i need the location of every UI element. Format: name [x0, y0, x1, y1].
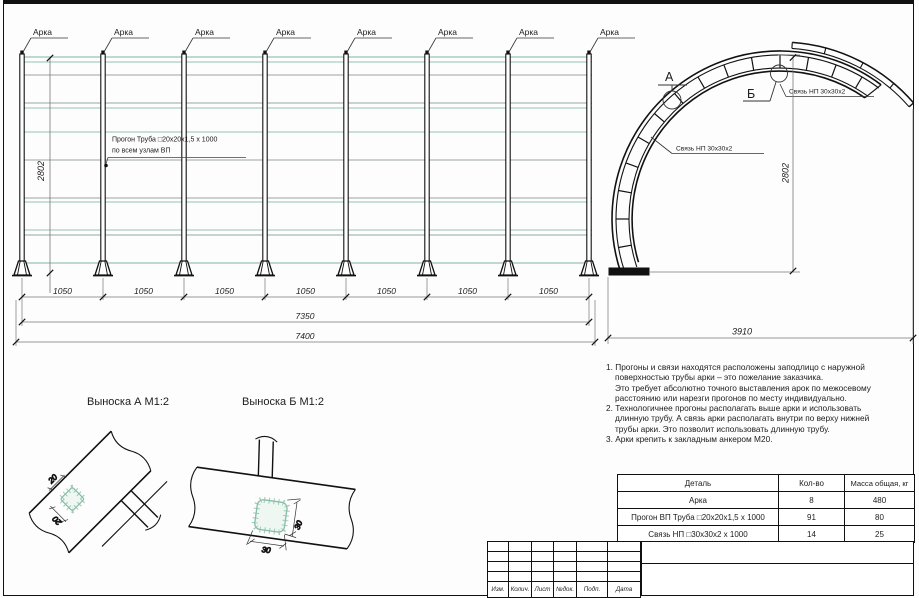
callout-a-label: А: [665, 70, 674, 84]
dim-1050: 1050: [296, 286, 315, 296]
table-header-mass: Масса общая, кг: [845, 475, 914, 492]
title-block-label-kolich: Колич.: [509, 582, 532, 597]
detail-b-title: Выноска Б М1:2: [242, 396, 324, 408]
note-line: трубы арки. Это позволит использовать дл…: [606, 424, 919, 434]
table-cell-qty: 14: [779, 526, 845, 542]
title-block-label-izm: Изм.: [488, 582, 509, 597]
arch-label: Арка: [438, 27, 457, 37]
note-line: длинную трубу. А связь арки располагать …: [606, 413, 919, 423]
table-cell-qty: 8: [779, 492, 845, 509]
elevation-dim-labels: 1050 1050 1050 1050 1050 1050 1050 7350 …: [53, 286, 558, 341]
table-cell-qty: 91: [779, 509, 845, 526]
table-cell-mass: 480: [845, 492, 914, 509]
dim-1050: 1050: [458, 286, 477, 296]
dim-3910: 3910: [732, 327, 752, 337]
title-block-name-area: [641, 541, 914, 596]
section-dims: 2802 3910: [605, 54, 916, 344]
detail-a-dim2: 20: [50, 514, 64, 528]
dim-1050: 1050: [215, 286, 234, 296]
dim-1050: 1050: [377, 286, 396, 296]
note-line: 2. Технологичнее прогоны располагать выш…: [606, 403, 919, 413]
detail-b-view: Выноска Б М1:2 30: [182, 396, 365, 566]
tie-label-top-text: Связь НП 30х30х2: [789, 89, 846, 96]
ladder-rungs: [616, 55, 862, 248]
arch-label: Арка: [600, 27, 619, 37]
callout-b-label: Б: [747, 87, 755, 101]
dim-1050: 1050: [53, 286, 72, 296]
tie-label-side-text: Связь НП 30х30х2: [676, 146, 733, 153]
table-cell-detail: Арка: [618, 492, 779, 509]
arch-label: Арка: [195, 27, 214, 37]
arch-label: Арка: [114, 27, 133, 37]
arch-base-plate: [609, 268, 649, 275]
title-block-label-podp: Подп.: [577, 582, 608, 597]
arch-label: Арка: [276, 27, 295, 37]
table-header-detail: Деталь: [618, 475, 779, 492]
dim-2802-section: 2802: [781, 163, 791, 184]
note-line: 3. Арки крепить к закладным анкером М20.: [606, 434, 919, 444]
table-cell-mass: 25: [845, 526, 914, 542]
detail-a-title: Выноска А М1:2: [87, 396, 169, 408]
arch-posts: [12, 38, 635, 276]
elevation-height-dim: 2802: [36, 55, 53, 293]
note-line: 1. Прогоны и связи находятся расположены…: [606, 362, 919, 372]
dim-2802: 2802: [36, 161, 46, 182]
title-block-label-list: Лист: [532, 582, 554, 597]
arch-label: Арка: [33, 27, 52, 37]
note-line: поверхностью трубы арки – это пожелание …: [606, 372, 919, 382]
tie-label-side: Связь НП 30х30х2: [651, 137, 764, 154]
elevation-view: Арка Арка Арка Арка Арка Арка Арка Арка …: [12, 27, 635, 346]
purlin-note-line1: Прогон Труба □20x20x1,5 х 1000: [112, 136, 217, 144]
dim-7400: 7400: [296, 331, 315, 341]
dim-1050: 1050: [134, 286, 153, 296]
purlin-note-line2: по всем узлам ВП: [112, 148, 171, 155]
title-block-grid: Изм. Колич. Лист №док. Подп. Дата: [487, 541, 641, 598]
title-block-doc-field: [642, 542, 913, 564]
table-header-qty: Кол-во: [779, 475, 845, 492]
detail-b-dim1: 30: [261, 545, 272, 555]
table-cell-detail: Прогон ВП Труба □20x20x1,5 х 1000: [618, 509, 779, 526]
title-block-label-data: Дата: [608, 582, 640, 597]
parts-table: Деталь Кол-во Масса общая, кг Арка 8 480…: [617, 474, 915, 543]
table-cell-detail: Связь НП □30х30х2 х 1000: [618, 526, 779, 542]
title-block-label-ndok: №док.: [554, 582, 577, 597]
dim-7350: 7350: [296, 311, 315, 321]
arch-ladder: [609, 51, 881, 275]
arch-label: Арка: [519, 27, 538, 37]
purlin-note: Прогон Труба □20x20x1,5 х 1000 по всем у…: [104, 136, 246, 168]
table-cell-mass: 80: [845, 509, 914, 526]
note-line: расстоянию или нарезги прогонов по месту…: [606, 393, 919, 403]
notes-block: 1. Прогоны и связи находятся расположены…: [606, 362, 919, 444]
note-line: Это требует абсолютно точного выставлени…: [606, 383, 919, 393]
arc-section-view: А Б Связь НП 30х30х2 Связь НП 30х30х2: [605, 42, 916, 344]
detail-a-view: Выноска А М1:2 20 20: [18, 396, 183, 585]
arch-label: Арка: [357, 27, 376, 37]
dim-1050: 1050: [539, 286, 558, 296]
arch-labels: Арка Арка Арка Арка Арка Арка Арка Арка: [33, 27, 619, 37]
